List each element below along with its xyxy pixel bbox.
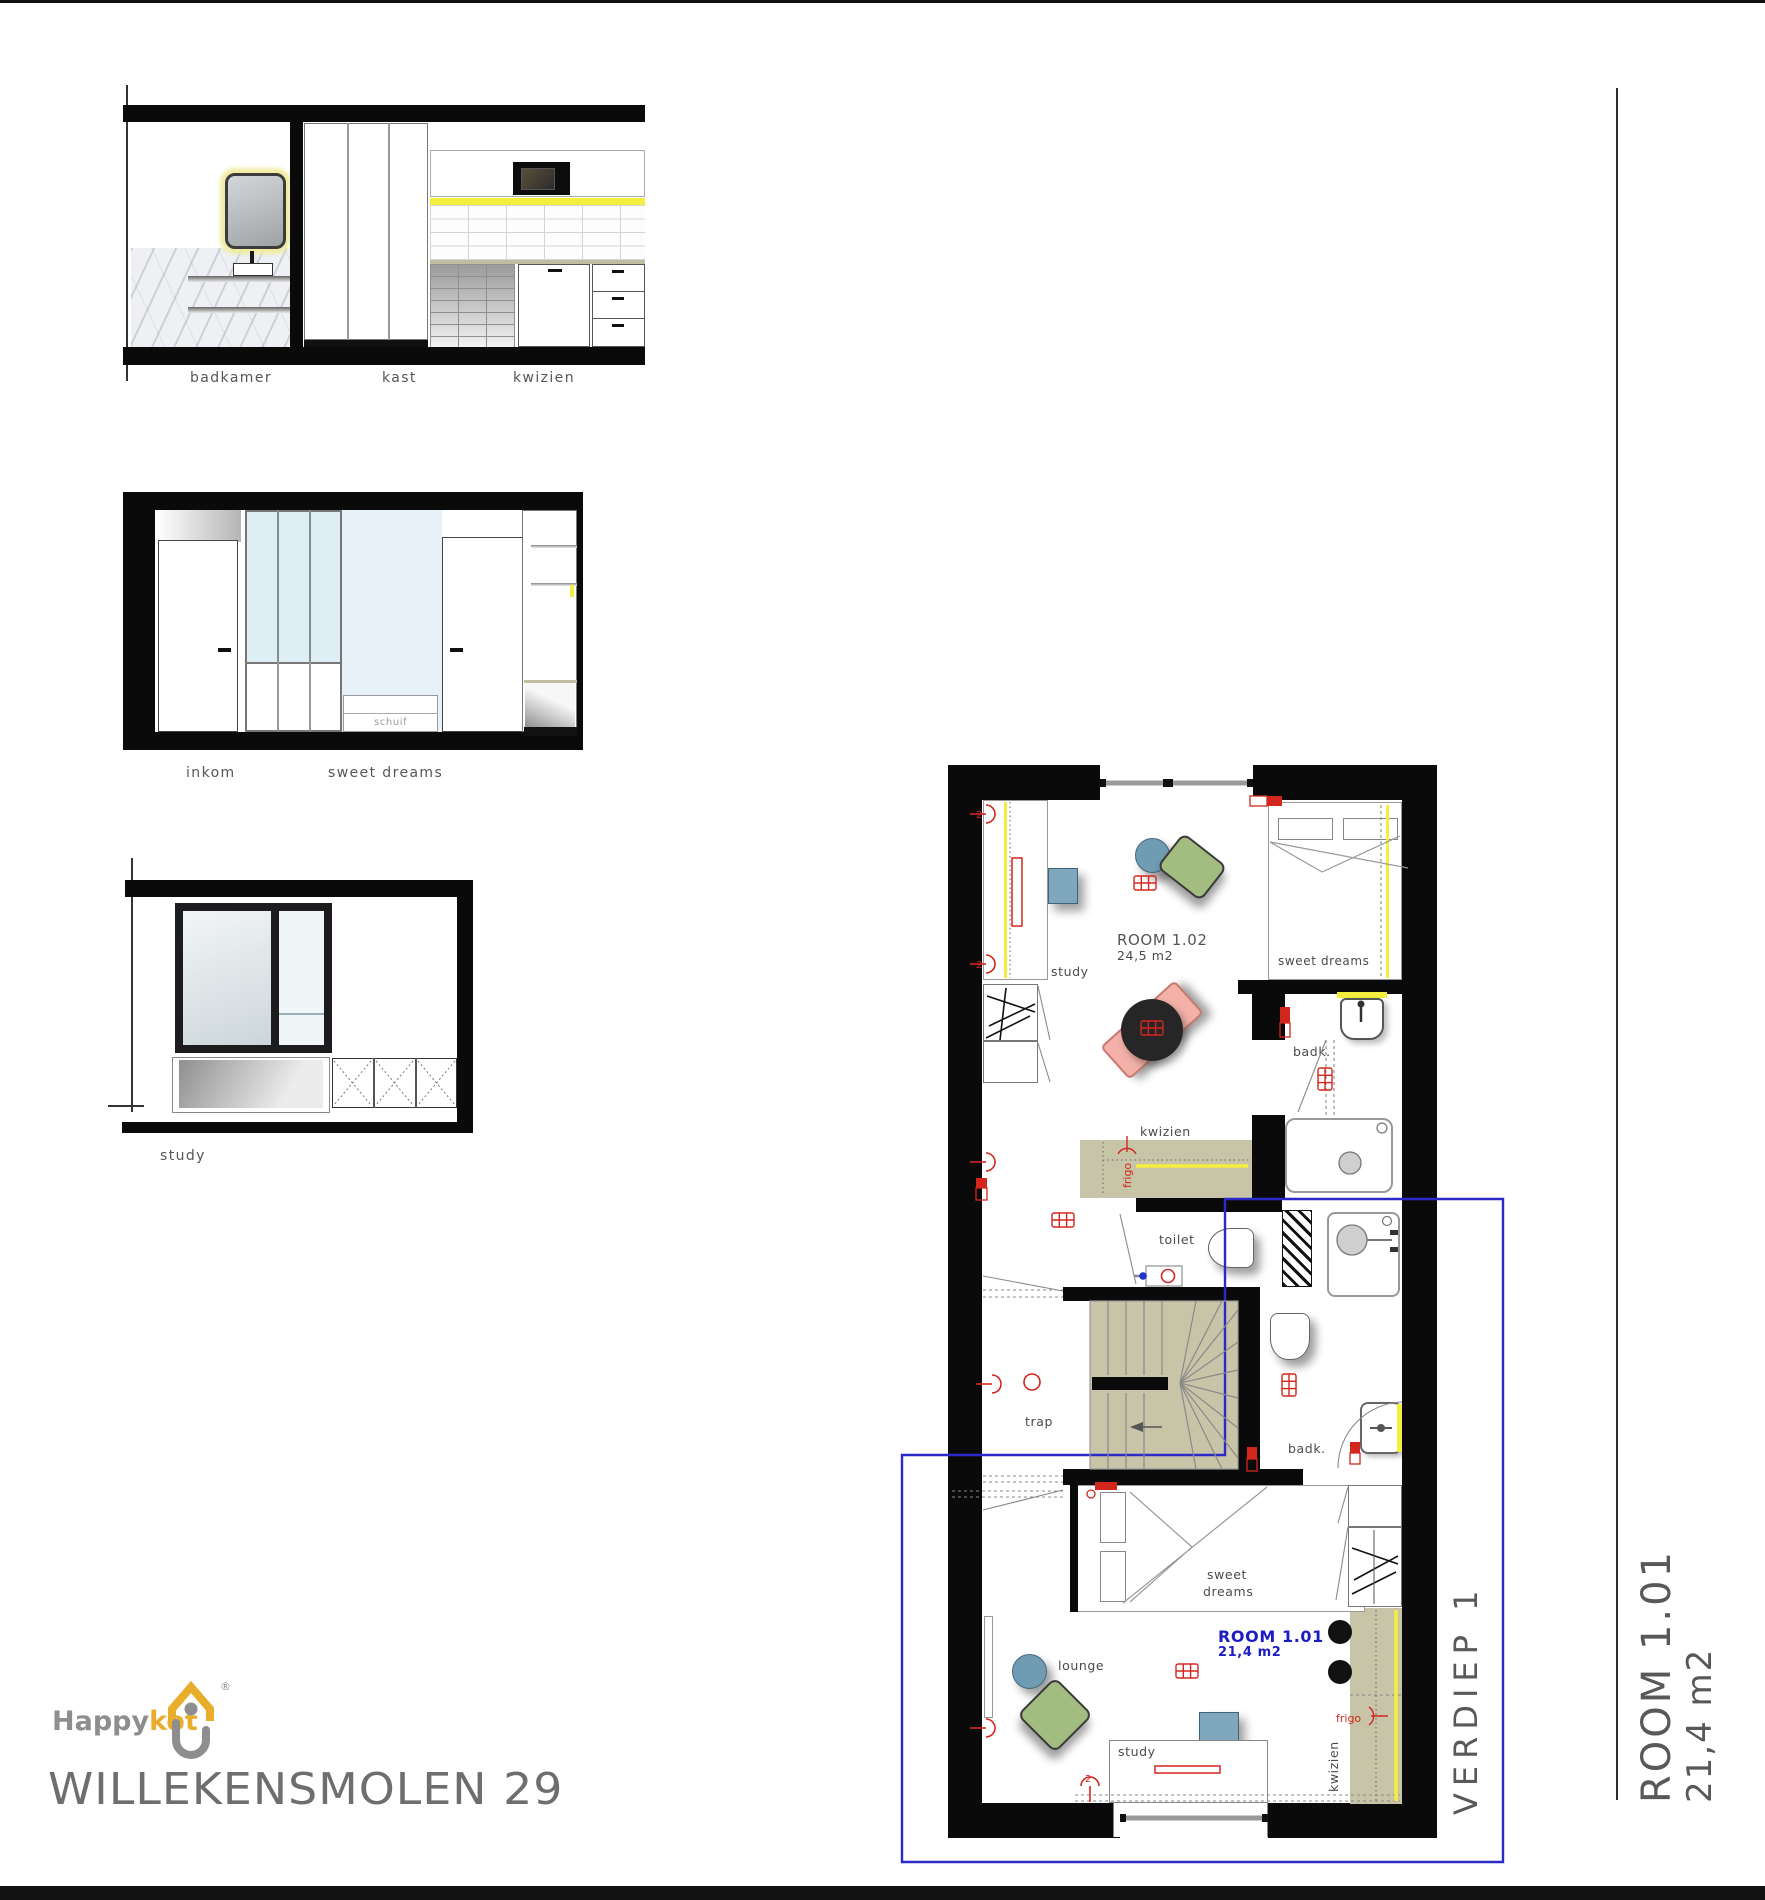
elevation1-divider-wall [290, 122, 303, 347]
bed-101-pillow [1100, 1551, 1126, 1602]
desk-chair-102 [1048, 868, 1078, 904]
bar-stool [1328, 1660, 1352, 1684]
kitchen-drawer [592, 291, 645, 319]
wardrobe-101-upper [1348, 1485, 1402, 1527]
reference-line [126, 85, 128, 381]
desk-102-led [1004, 802, 1007, 978]
room102-title: ROOM 1.02 [1117, 931, 1208, 949]
sheet-address: WILLEKENSMOLEN 29 [48, 1764, 563, 1815]
elevation3-right-wall [457, 880, 473, 1132]
kitchen-led-strip [430, 198, 645, 205]
study-window-side-pane [279, 911, 324, 1045]
side-pane-rail [279, 1013, 324, 1015]
label-kwizien-101: kwizien [1326, 1732, 1341, 1792]
round-table-102 [1121, 999, 1183, 1061]
shelf-plinth [524, 727, 577, 736]
inkom-door-handle [218, 648, 231, 652]
label-sweetdreams-102: sweet dreams [1278, 954, 1370, 968]
cabinet-divider [373, 1058, 375, 1108]
label-badk-1: badk. [1293, 1044, 1331, 1059]
titleblock-divider-line [1616, 88, 1618, 1800]
kitchen-drawer [592, 264, 645, 292]
inkom-door [158, 540, 238, 732]
badk2-toilet [1270, 1313, 1310, 1360]
panel-line [309, 662, 311, 730]
label-sweet: sweet [1207, 1567, 1247, 1582]
room101-area: 21,4 m2 [1218, 1645, 1281, 1660]
plan-wall-bottom-left [948, 1803, 1120, 1838]
staircase [1090, 1301, 1238, 1469]
drawer-handle [612, 297, 624, 300]
badk1-shower [1285, 1118, 1393, 1193]
panel-line [277, 662, 279, 730]
elevation-label-study: study [160, 1148, 206, 1164]
kast-cabinet [304, 123, 428, 340]
bathroom-shelf [188, 276, 290, 282]
badk1-sink [1340, 998, 1384, 1040]
bathroom-shelf [188, 307, 290, 313]
elevation-label-kast: kast [382, 370, 417, 386]
label-badk-2: badk. [1288, 1441, 1326, 1456]
desk-102 [983, 800, 1048, 980]
bed-102-led [1386, 805, 1389, 978]
wall-toilet-top [1136, 1198, 1282, 1212]
green-chair-102 [1156, 832, 1227, 901]
wardrobe-102-lower [983, 1041, 1038, 1083]
wall-trap-top [1063, 1287, 1238, 1301]
wall-trap-right [1238, 1287, 1260, 1469]
label-dreams: dreams [1203, 1584, 1253, 1599]
kast-door-line [347, 123, 349, 340]
elevation-label-sweet-dreams: sweet dreams [328, 765, 443, 781]
shelf-light-tick [570, 585, 574, 597]
label-trap: trap [1025, 1414, 1053, 1429]
elevation-label-kwizien: kwizien [513, 370, 575, 386]
study-cabinet [332, 1058, 457, 1108]
shelf-line [531, 545, 577, 548]
appliance-handle [548, 269, 562, 272]
plan-wall-right [1402, 765, 1437, 1838]
elevation1-top-wall [123, 105, 645, 122]
elevation-label-badkamer: badkamer [190, 370, 272, 386]
elevation-label-inkom: inkom [186, 765, 236, 781]
titleblock-room-area: 21,4 m2 [1680, 1523, 1720, 1803]
logo-registered-mark: ® [220, 1680, 231, 1693]
page-top-border [0, 0, 1765, 3]
kitchen-brick-column [430, 264, 515, 347]
wall-room101-top [1063, 1469, 1303, 1485]
toilet-bowl [1208, 1228, 1254, 1268]
wall-badk1-lower [1252, 1115, 1285, 1198]
kast-plinth [304, 340, 428, 347]
kitchen-counter-101 [1350, 1608, 1402, 1804]
partition-lower-panels [247, 662, 340, 730]
inkom-wall-gradient [157, 510, 241, 542]
kitchen-counter-102 [1080, 1140, 1252, 1198]
label-study-102: study [1051, 964, 1089, 979]
wardrobe-101-lower [1348, 1527, 1402, 1607]
desk-101-window-bay [1113, 1803, 1268, 1837]
bed-101-pillow [1100, 1492, 1126, 1543]
bed-102-pillow [1278, 818, 1333, 840]
bedroom-door-handle [450, 648, 463, 652]
desk-chair-101 [1199, 1712, 1239, 1742]
badk2-sink [1360, 1402, 1402, 1454]
wall-hatched-section [1282, 1210, 1312, 1287]
bench-drawer-line [343, 713, 438, 714]
microwave-window [521, 168, 555, 190]
bathroom-tap-icon [250, 251, 254, 263]
window-top [1100, 765, 1253, 800]
label-lounge: lounge [1058, 1658, 1104, 1673]
elevation3-top-wall [125, 880, 458, 897]
cabinet-divider [415, 1058, 417, 1108]
drawer-handle [612, 270, 624, 273]
reference-tick [108, 1105, 144, 1107]
bathroom-mirror [225, 173, 286, 249]
floor-title-verdiep: VERDIEP 1 [1447, 1515, 1485, 1815]
bedroom-door [442, 537, 523, 732]
kast-door-line [388, 123, 390, 340]
kitchen-drawer [592, 318, 645, 347]
label-toilet: toilet [1159, 1232, 1195, 1247]
toilet-flush-control [1134, 1266, 1182, 1286]
kitchen-appliance [518, 264, 590, 347]
wall-badk1-upper [1252, 994, 1285, 1040]
page-bottom-border [0, 1886, 1765, 1900]
logo-happy: Happy [52, 1706, 149, 1737]
badk2-sink-light [1397, 1404, 1402, 1452]
room101-title: ROOM 1.01 [1218, 1627, 1324, 1646]
plan-sheet: badkamer kast kwizien schuif inkom sweet… [0, 0, 1765, 1900]
badk2-shower [1327, 1212, 1400, 1297]
shelf-mirror-panel [525, 683, 575, 727]
study-window-large-pane [183, 911, 271, 1045]
plan-wall-bottom-right [1268, 1803, 1437, 1838]
elevation3-bottom-wall [122, 1122, 473, 1133]
room102-area: 24,5 m2 [1117, 948, 1173, 963]
bar-stool [1328, 1620, 1352, 1644]
study-desk-front [179, 1060, 323, 1108]
bed-102-pillow [1343, 818, 1398, 840]
bed-101-headboard [1070, 1485, 1078, 1612]
plan-wall-left [948, 765, 982, 1838]
bathroom-sink [233, 263, 273, 276]
label-study-101: study [1118, 1744, 1156, 1759]
logo-house-icon [165, 1678, 217, 1764]
elevation1-bottom-wall [123, 347, 645, 365]
titleblock-room-name: ROOM 1.01 [1634, 1523, 1680, 1803]
kitchen-tiles [430, 205, 645, 260]
svg-text:2: 2 [1085, 1774, 1091, 1785]
wardrobe-102-upper [983, 984, 1038, 1041]
titleblock-room: ROOM 1.01 21,4 m2 [1634, 1523, 1720, 1803]
side-table-101 [1012, 1654, 1047, 1689]
drawer-handle [612, 324, 624, 327]
plan-wall-top-left [948, 765, 1100, 800]
wall-shelf-101 [984, 1616, 993, 1718]
drawer-label-schuif: schuif [374, 717, 407, 728]
label-kwizien-102: kwizien [1140, 1124, 1191, 1139]
